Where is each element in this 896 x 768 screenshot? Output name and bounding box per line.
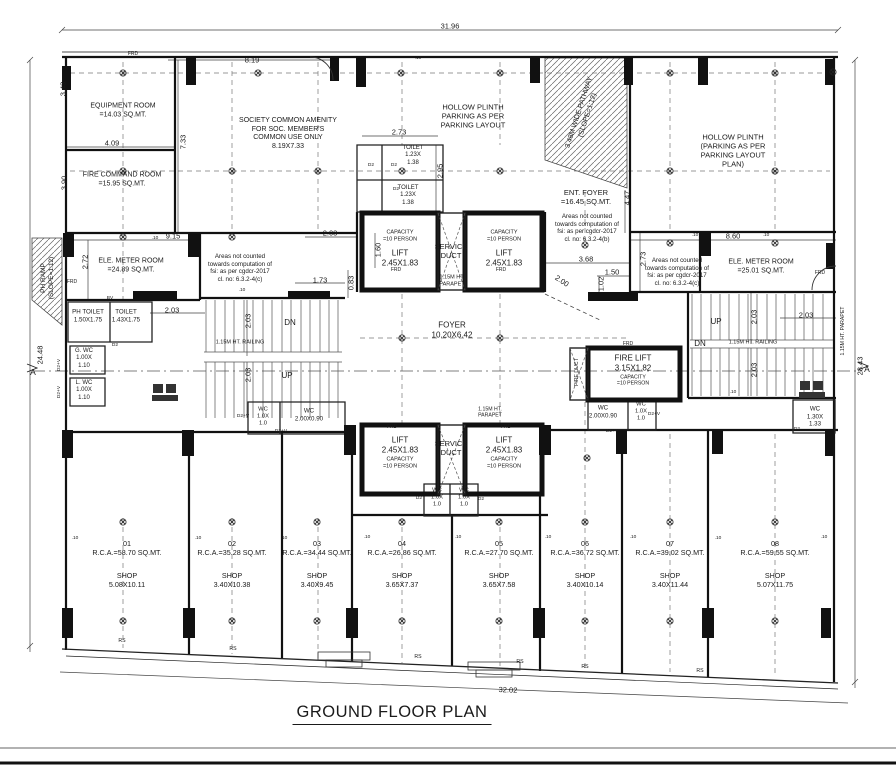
column-symbols (120, 69, 836, 624)
walls (62, 57, 838, 682)
duct-cross-lines (438, 213, 588, 494)
section-arrows (27, 362, 868, 372)
plan-linework (0, 0, 896, 768)
stairs-right (690, 294, 834, 396)
floor-plan-drawing: GROUND FLOOR PLAN 31.968.193.434.097.333… (0, 0, 896, 768)
service-ducts (438, 213, 588, 494)
partitions (62, 145, 838, 683)
column-grid-lines (70, 62, 830, 676)
drawing-title: GROUND FLOOR PLAN (293, 703, 492, 725)
stairs-left (204, 300, 342, 418)
ph-ramp-hatch (32, 238, 62, 325)
dimension-lines (27, 27, 858, 703)
entrance-pathway-hatch (545, 58, 627, 188)
lift-shafts (362, 213, 680, 494)
